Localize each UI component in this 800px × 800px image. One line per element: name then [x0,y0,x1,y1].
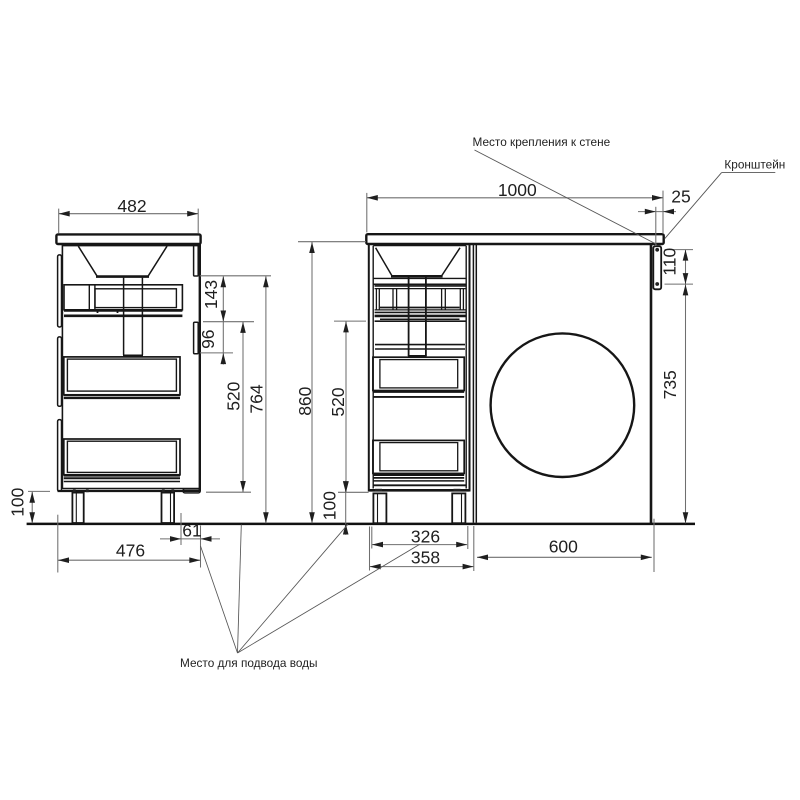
svg-text:520: 520 [224,381,244,410]
svg-text:1000: 1000 [498,180,537,200]
svg-text:735: 735 [660,370,680,399]
svg-text:860: 860 [295,386,315,415]
svg-text:96: 96 [198,329,218,348]
svg-text:100: 100 [7,487,27,516]
svg-text:764: 764 [246,384,266,413]
svg-text:600: 600 [549,537,578,557]
svg-text:25: 25 [671,186,690,206]
svg-text:143: 143 [201,280,221,309]
svg-text:358: 358 [411,547,440,567]
svg-text:482: 482 [117,196,146,216]
svg-text:Кронштейн: Кронштейн [724,157,785,171]
svg-text:520: 520 [328,387,348,416]
svg-text:61: 61 [182,521,201,541]
svg-text:Место для подвода воды: Место для подвода воды [180,656,318,670]
svg-text:110: 110 [660,247,680,275]
svg-text:326: 326 [411,527,440,547]
svg-text:Место крепления к стене: Место крепления к стене [473,135,611,149]
svg-text:476: 476 [116,541,145,561]
svg-text:100: 100 [320,491,340,520]
